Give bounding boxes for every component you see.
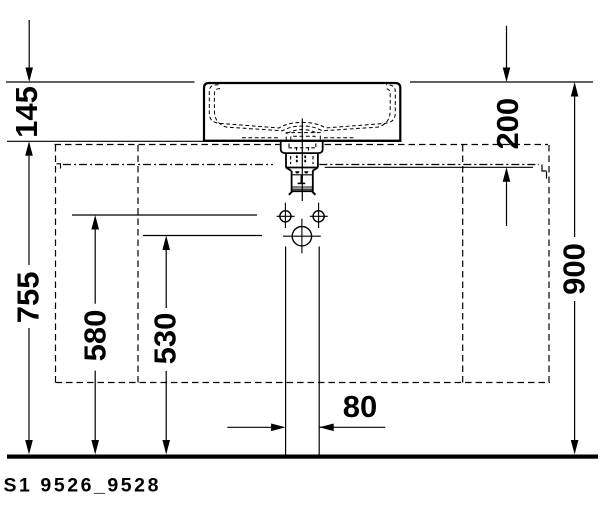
svg-text:200: 200 [490,98,525,150]
svg-text:580: 580 [78,310,113,362]
svg-text:S1 9526_9528: S1 9526_9528 [4,475,161,497]
svg-text:80: 80 [343,389,377,424]
svg-text:530: 530 [147,313,182,365]
svg-text:145: 145 [9,86,44,138]
svg-text:900: 900 [557,243,592,295]
svg-text:755: 755 [10,272,45,324]
